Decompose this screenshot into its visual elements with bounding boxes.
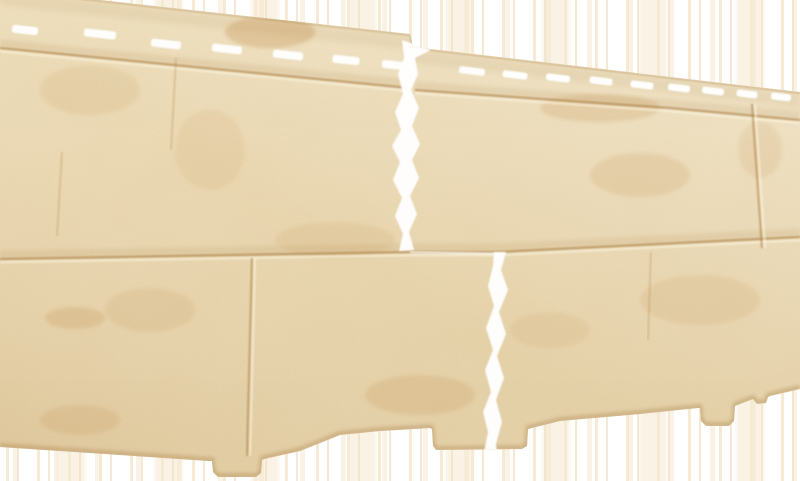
product-photo <box>0 0 800 481</box>
siding-panel-image <box>0 0 800 481</box>
siding-panel-svg <box>0 0 800 481</box>
panel-surface <box>0 0 800 481</box>
